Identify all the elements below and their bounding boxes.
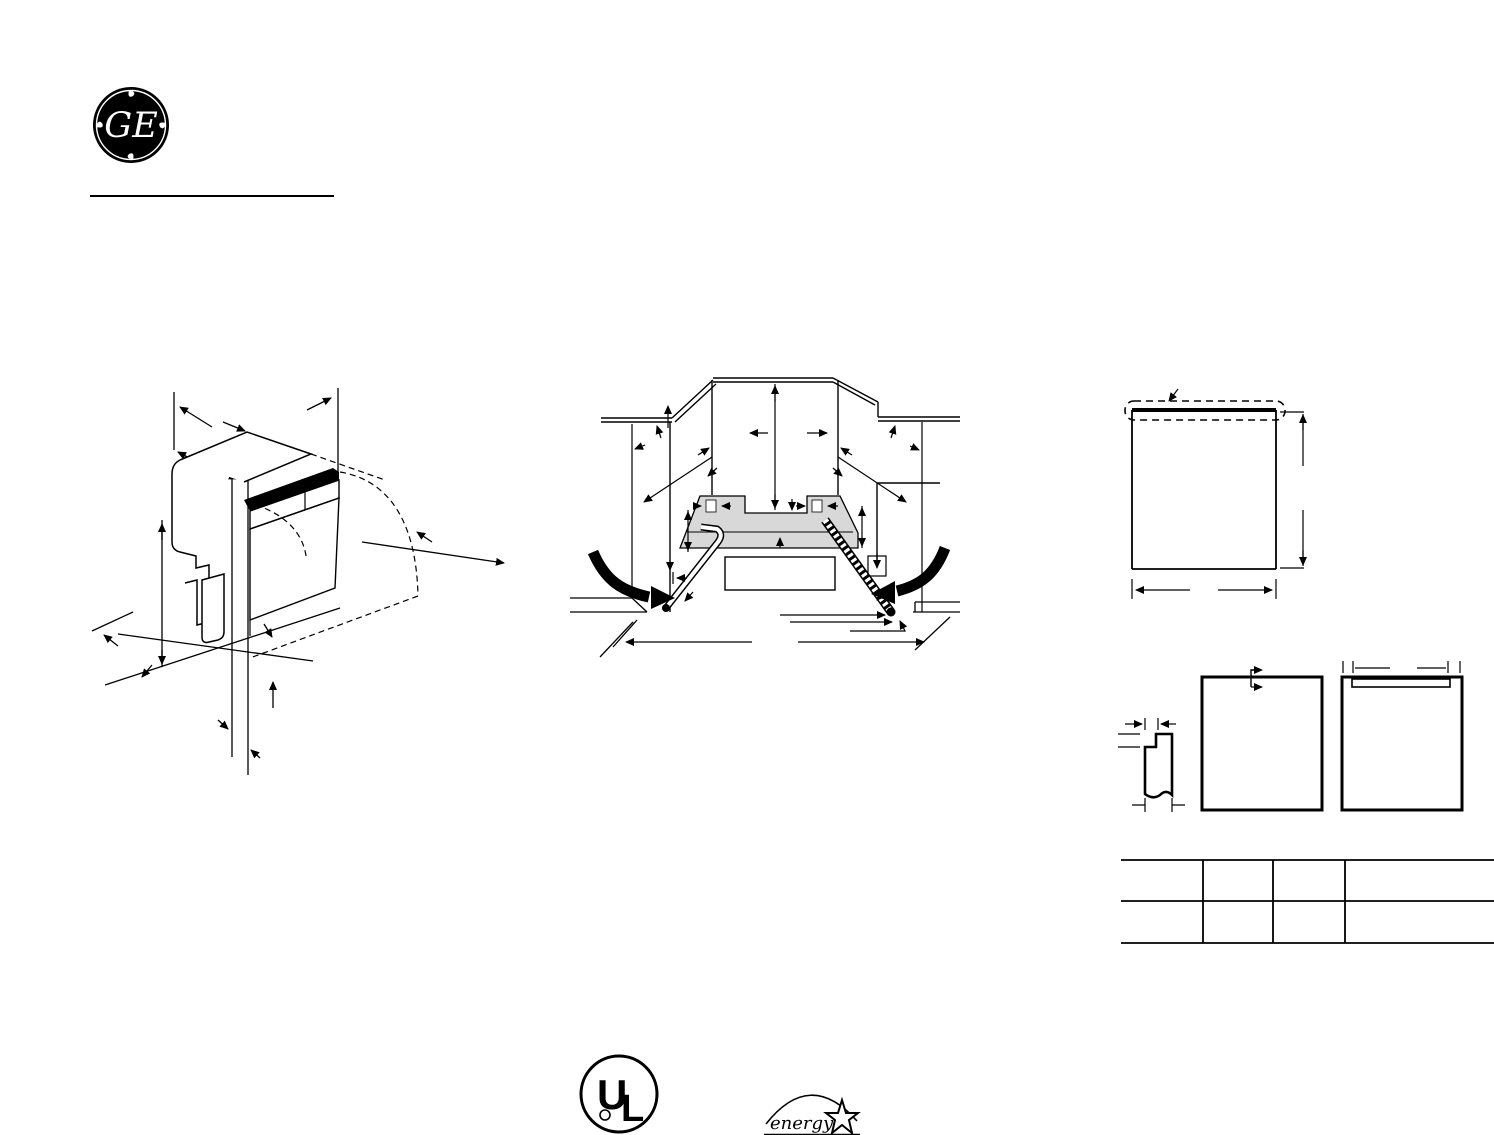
ge-logo-icon: GE	[91, 85, 171, 165]
ge-monogram-letters: GE	[104, 106, 158, 146]
panel-edge-profile	[1145, 734, 1172, 797]
opening-floor-lines	[570, 598, 960, 657]
figure-cabinet-opening	[565, 358, 965, 658]
ul-letter-l: L	[621, 1088, 644, 1130]
opening-base-slab	[680, 496, 858, 590]
left-slot	[706, 500, 716, 512]
figure-door-panel	[1112, 378, 1312, 600]
figure-isometric-dishwasher	[78, 368, 518, 778]
ul-listed-icon: U L	[577, 1053, 661, 1135]
energy-star-icon: energy	[760, 1078, 865, 1135]
iso-dimension-lines	[92, 388, 504, 775]
spec-table-lines	[1121, 860, 1494, 943]
spec-table-grid	[1118, 855, 1494, 950]
right-slot	[812, 500, 822, 512]
door-panel-outline	[1132, 410, 1276, 569]
energy-star-word: energy	[770, 1113, 834, 1134]
header-rule	[90, 195, 334, 197]
iso-cabinet-body	[172, 432, 311, 642]
panel-option-inset	[1342, 661, 1462, 810]
panel-option-flush	[1202, 670, 1322, 810]
junction-box	[725, 557, 835, 590]
iso-dishwasher-door	[244, 468, 339, 636]
figure-panel-options	[1112, 648, 1482, 823]
spec-sheet-page: GE	[0, 0, 1494, 1135]
